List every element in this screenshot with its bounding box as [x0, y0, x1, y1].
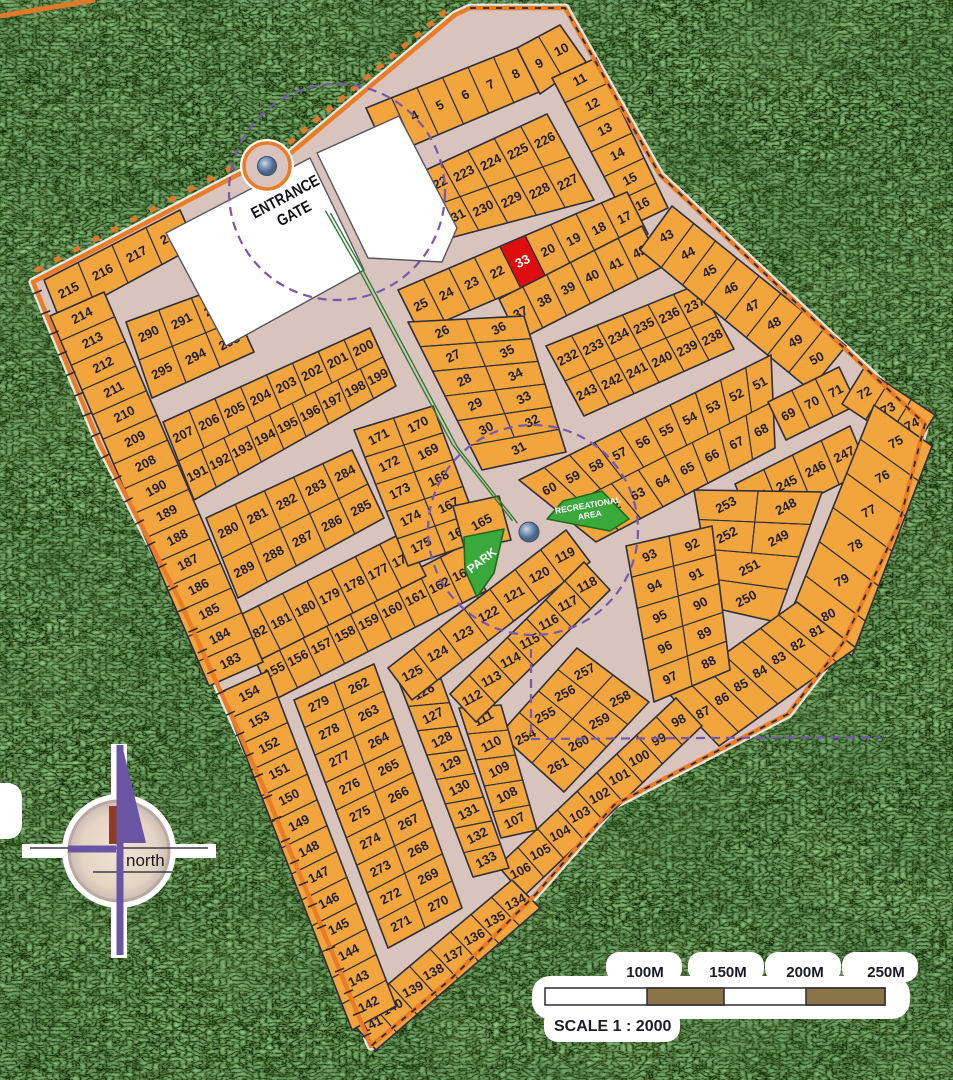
svg-text:150M: 150M — [709, 964, 747, 981]
svg-text:200M: 200M — [786, 964, 824, 981]
svg-text:250M: 250M — [867, 964, 905, 981]
svg-text:SCALE 1 : 2000: SCALE 1 : 2000 — [554, 1018, 671, 1035]
svg-text:100M: 100M — [626, 964, 664, 981]
svg-text:north: north — [126, 851, 165, 870]
